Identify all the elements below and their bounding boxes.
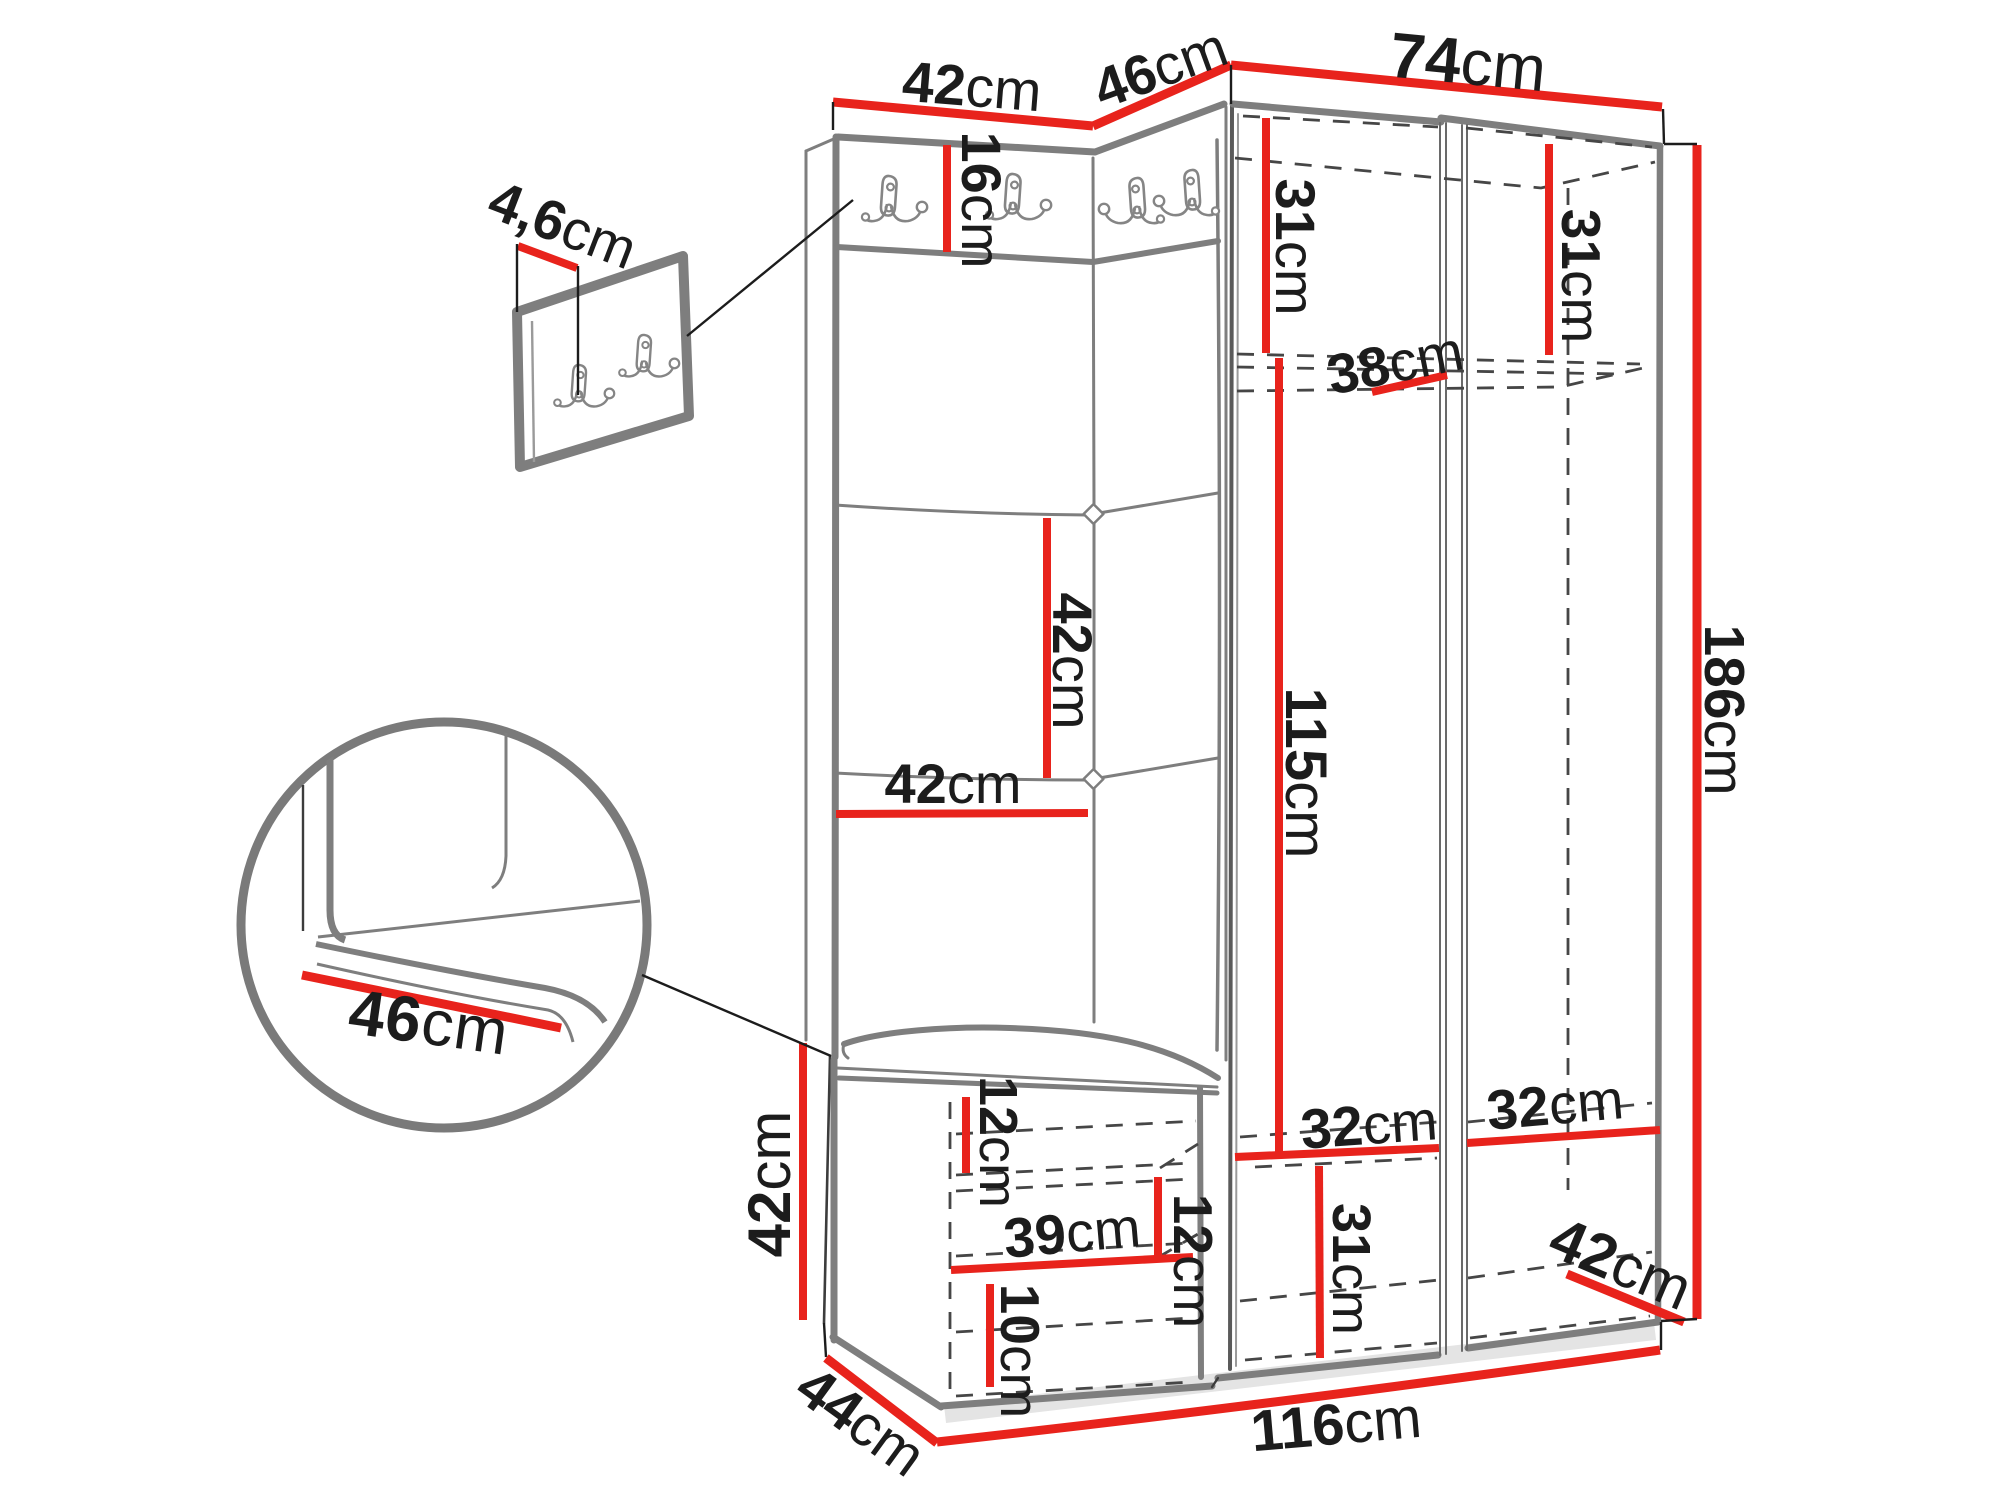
svg-text:10cm: 10cm xyxy=(989,1284,1051,1419)
svg-text:12cm: 12cm xyxy=(968,1076,1028,1208)
svg-text:186cm: 186cm xyxy=(1692,624,1756,795)
svg-text:42cm: 42cm xyxy=(900,50,1044,125)
svg-text:16cm: 16cm xyxy=(951,132,1014,269)
svg-text:32cm: 32cm xyxy=(1298,1088,1439,1160)
svg-text:39cm: 39cm xyxy=(1001,1195,1143,1270)
svg-text:42cm: 42cm xyxy=(1042,593,1105,730)
svg-text:74cm: 74cm xyxy=(1387,19,1550,106)
svg-text:12cm: 12cm xyxy=(1162,1194,1224,1329)
svg-text:31cm: 31cm xyxy=(1321,1203,1381,1335)
svg-text:42cm: 42cm xyxy=(885,752,1022,815)
svg-text:42cm: 42cm xyxy=(736,1111,803,1258)
svg-text:32cm: 32cm xyxy=(1484,1067,1626,1142)
svg-text:115cm: 115cm xyxy=(1274,688,1339,859)
svg-text:31cm: 31cm xyxy=(1550,209,1612,344)
svg-text:31cm: 31cm xyxy=(1265,179,1328,316)
